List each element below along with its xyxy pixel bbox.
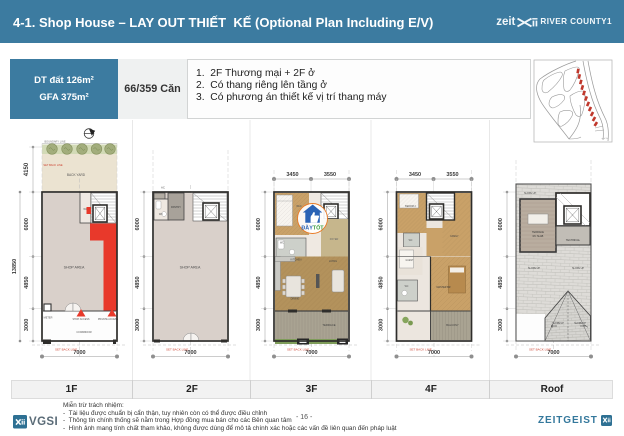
svg-text:RC SLAB: RC SLAB [533, 235, 544, 238]
svg-text:BOUNDARY LINE: BOUNDARY LINE [44, 140, 65, 144]
svg-text:3550: 3550 [324, 172, 336, 178]
svg-text:6000: 6000 [24, 218, 30, 230]
svg-text:6000: 6000 [498, 218, 504, 230]
svg-text:SLOPE UP: SLOPE UP [528, 267, 540, 270]
svg-text:PANTRY: PANTRY [171, 206, 181, 209]
svg-text:WC: WC [409, 240, 413, 242]
svg-text:CORRIDOR: CORRIDOR [76, 330, 91, 334]
svg-text:4150: 4150 [24, 162, 30, 176]
svg-text:3000: 3000 [498, 319, 504, 331]
svg-text:BACK YARD: BACK YARD [67, 173, 86, 177]
svg-text:SET BACK LINE: SET BACK LINE [529, 348, 551, 352]
svg-text:3000: 3000 [24, 319, 30, 331]
svg-text:SHOP AREA: SHOP AREA [64, 266, 85, 270]
svg-text:4850: 4850 [379, 276, 385, 288]
svg-text:13850: 13850 [12, 259, 18, 275]
svg-text:TECHNICAL: TECHNICAL [566, 239, 581, 242]
svg-text:SET BACK LINE: SET BACK LINE [43, 163, 63, 167]
svg-text:4850: 4850 [135, 276, 141, 288]
svg-text:BALCONY: BALCONY [446, 323, 459, 327]
svg-text:TERRACE: TERRACE [322, 323, 335, 327]
svg-text:MASTER BR: MASTER BR [437, 286, 451, 289]
svg-text:4850: 4850 [498, 276, 504, 288]
svg-text:WC: WC [280, 242, 284, 245]
svg-text:SLOPE UP: SLOPE UP [572, 267, 584, 270]
svg-text:LIVING: LIVING [329, 260, 337, 263]
svg-text:PRIVATE ACCESS: PRIVATE ACCESS [98, 318, 119, 321]
svg-text:3450: 3450 [286, 172, 298, 178]
svg-text:4850: 4850 [256, 276, 262, 288]
svg-text:3550: 3550 [446, 172, 458, 178]
svg-text:FOYER: FOYER [330, 238, 339, 241]
svg-text:DINING: DINING [291, 298, 300, 301]
svg-text:SET BACK LINE: SET BACK LINE [287, 348, 309, 352]
svg-text:KITCHEN: KITCHEN [291, 259, 302, 262]
svg-text:zeit Xii: zeit Xii [602, 137, 609, 140]
svg-text:SET BACK LINE: SET BACK LINE [55, 348, 77, 352]
svg-text:3000: 3000 [256, 319, 262, 331]
svg-text:WC: WC [405, 286, 409, 288]
svg-text:3000: 3000 [135, 319, 141, 331]
svg-text:METER: METER [44, 317, 53, 320]
svg-text:6000: 6000 [256, 218, 262, 230]
svg-text:SET BACK LINE: SET BACK LINE [410, 348, 432, 352]
svg-text:GUEST: GUEST [406, 260, 415, 262]
svg-text:ĐẦYTỐT: ĐẦYTỐT [301, 225, 324, 232]
svg-text:3450: 3450 [409, 172, 421, 178]
svg-text:6000: 6000 [379, 218, 385, 230]
svg-text:AC: AC [161, 186, 165, 190]
svg-text:TERRACE: TERRACE [532, 231, 544, 234]
svg-text:WC: WC [159, 213, 163, 216]
svg-text:SLOPE UP: SLOPE UP [552, 323, 564, 325]
svg-text:SLOPE UP: SLOPE UP [524, 192, 536, 195]
svg-text:SHOP ACCESS: SHOP ACCESS [72, 318, 89, 321]
svg-text:SET BACK LINE: SET BACK LINE [166, 348, 188, 352]
svg-text:4850: 4850 [24, 276, 30, 288]
svg-text:3000: 3000 [379, 319, 385, 331]
svg-text:6000: 6000 [135, 218, 141, 230]
svg-text:SHOP AREA: SHOP AREA [180, 266, 201, 270]
